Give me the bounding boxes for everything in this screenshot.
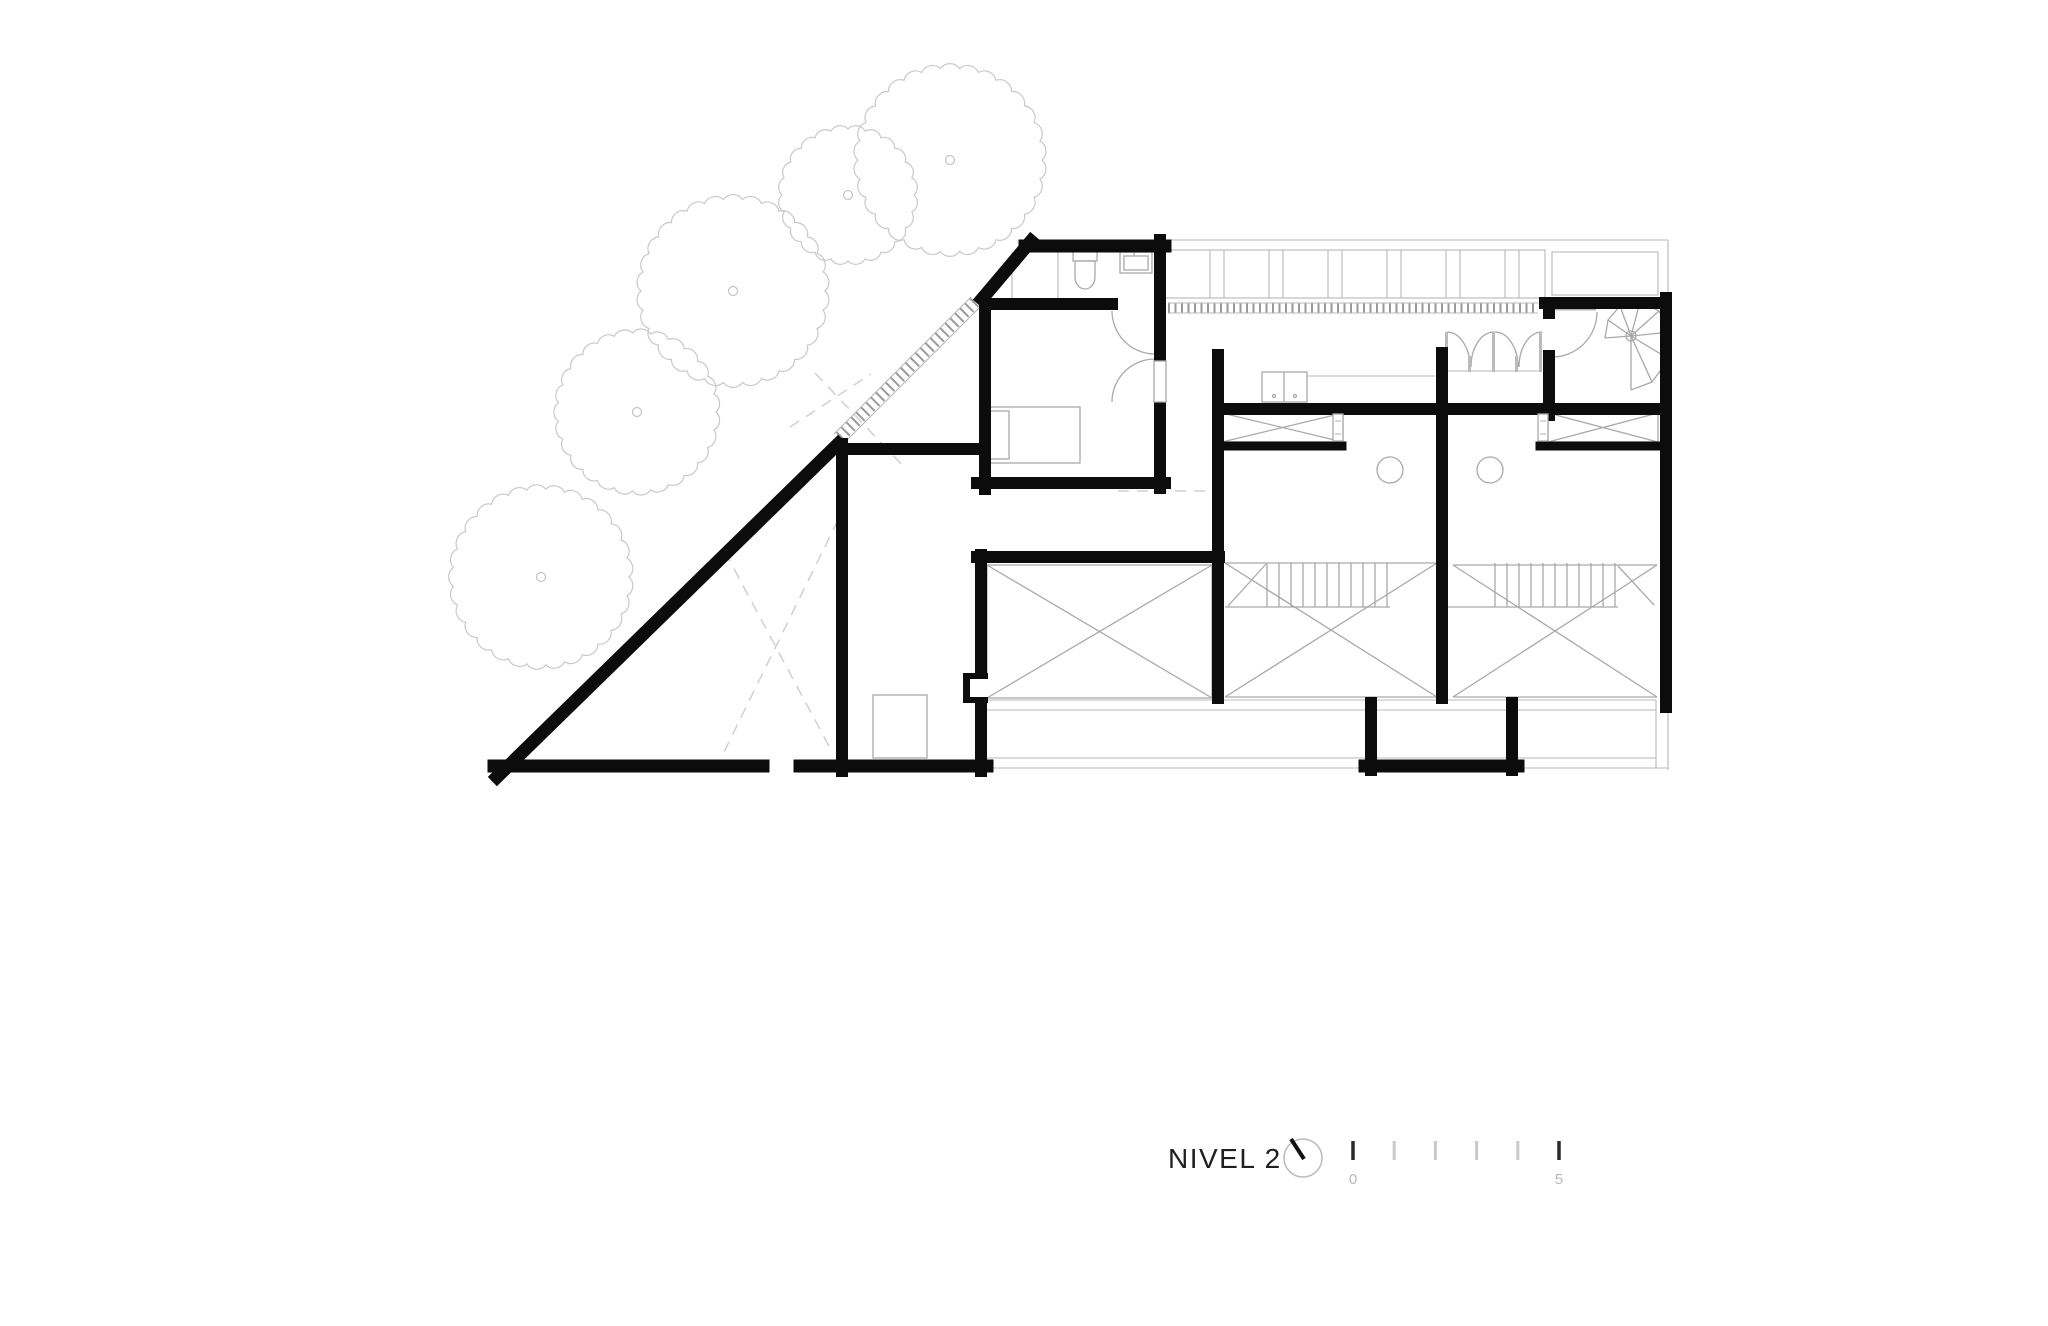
level-title: NIVEL 2 xyxy=(1168,1143,1282,1174)
tree-canopy-icon xyxy=(779,126,918,265)
tree-trunk-icon xyxy=(844,191,853,200)
tree-canopy-icon xyxy=(637,195,829,388)
tree-trunk-icon xyxy=(946,156,955,165)
tree-canopy-icon xyxy=(554,329,720,495)
floor-plan-canvas: NIVEL 2 0 5 xyxy=(0,0,2048,1326)
pocket-door-bracket-notch xyxy=(970,679,988,697)
north-arrow xyxy=(1284,1139,1322,1177)
sliding-leaf-right xyxy=(1538,414,1548,441)
scale-end-label: 5 xyxy=(1555,1171,1563,1188)
tree-canopy-icon xyxy=(854,64,1046,257)
tree-trunk-icon xyxy=(537,573,546,582)
title-block: NIVEL 2 0 5 xyxy=(1168,1139,1563,1188)
scale-bar xyxy=(1353,1141,1559,1160)
scale-start-label: 0 xyxy=(1349,1171,1357,1188)
door-leaf-bedroom xyxy=(1154,361,1166,402)
sliding-leaf-left xyxy=(1333,414,1343,441)
tree-trunk-icon xyxy=(729,287,738,296)
tree-canopy-icon xyxy=(449,485,633,669)
tree-trunk-icon xyxy=(633,408,642,417)
